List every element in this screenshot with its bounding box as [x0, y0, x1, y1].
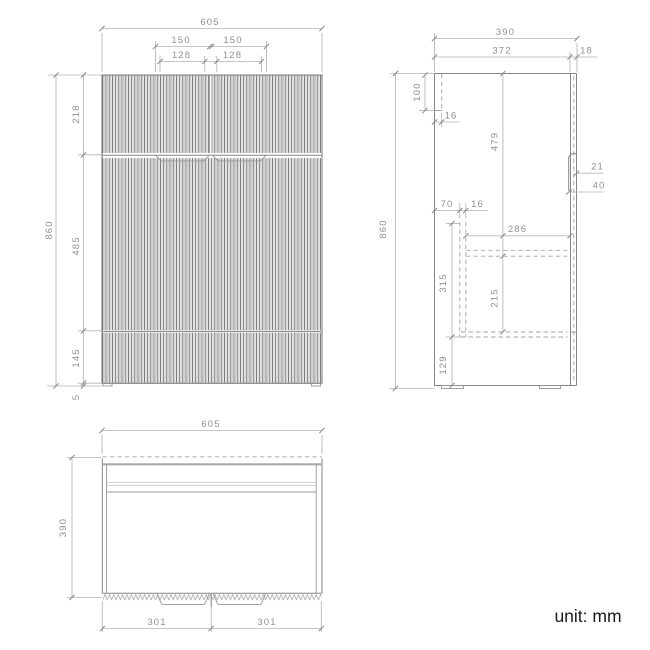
front-divider-bottom — [103, 330, 322, 333]
top-dimension-lines — [67, 431, 322, 633]
dim-side-shelf-depth: 286 — [508, 224, 527, 235]
unit-note: unit: mm — [554, 606, 621, 626]
dim-side-panel-thickness: 16 — [471, 199, 484, 210]
dim-top-overall-depth: 390 — [58, 518, 69, 537]
dim-top-door-width-left: 301 — [147, 617, 166, 628]
dim-top-door-width-right: 301 — [257, 617, 276, 628]
technical-drawing-canvas: 605 150 150 128 128 860 218 485 145 5 — [0, 0, 650, 650]
dim-side-shelf-back-offset: 70 — [441, 199, 454, 210]
dim-front-handle-span-left: 150 — [171, 35, 190, 46]
side-view: 390 372 18 860 100 16 70 16 286 479 215 … — [378, 27, 605, 391]
side-handle-groove — [569, 154, 577, 191]
dim-side-top-to-shelf: 479 — [490, 132, 501, 151]
dim-side-carcass-depth: 372 — [492, 46, 511, 57]
dim-front-middle-section: 485 — [71, 236, 82, 255]
dim-side-groove-height: 40 — [593, 181, 606, 192]
dim-side-overall-height: 860 — [378, 219, 389, 238]
dim-side-bottom-zone: 129 — [438, 355, 449, 374]
dim-front-top-section: 218 — [71, 104, 82, 123]
dim-front-bottom-section: 145 — [71, 348, 82, 367]
dim-front-handle-recess-right: 128 — [223, 50, 242, 61]
front-foot-right — [312, 384, 321, 387]
top-fluted-front-edge — [103, 594, 322, 601]
dim-side-back-rail-thickness: 16 — [445, 111, 458, 122]
dim-side-front-thickness: 18 — [580, 46, 593, 57]
dim-side-overall-depth: 390 — [496, 27, 515, 38]
dim-front-handle-recess-left: 128 — [172, 50, 191, 61]
top-outline — [102, 457, 322, 594]
side-front-panel — [571, 74, 577, 386]
dim-front-foot-height: 5 — [71, 394, 82, 400]
dim-top-overall-width: 605 — [201, 419, 220, 430]
dim-side-back-rail-height: 100 — [412, 82, 423, 101]
front-divider-top — [102, 153, 322, 158]
side-back-rail — [435, 74, 442, 111]
dimension-drawing-page: 605 150 150 128 128 860 218 485 145 5 — [0, 0, 650, 650]
dim-front-handle-span-right: 150 — [223, 35, 242, 46]
dim-front-overall-height: 860 — [44, 220, 55, 239]
dim-side-groove-depth: 21 — [591, 162, 604, 173]
dim-side-shelf-clearance: 215 — [490, 288, 501, 307]
top-dimension-ticks — [69, 428, 324, 631]
front-view: 605 150 150 128 128 860 218 485 145 5 — [44, 17, 325, 400]
dim-side-drawer-zone: 315 — [438, 273, 449, 292]
top-view: 605 390 301 301 — [58, 419, 325, 632]
side-hidden-drawer-box — [460, 222, 568, 337]
dim-front-overall-width: 605 — [200, 17, 219, 28]
front-door-gap — [209, 76, 212, 154]
